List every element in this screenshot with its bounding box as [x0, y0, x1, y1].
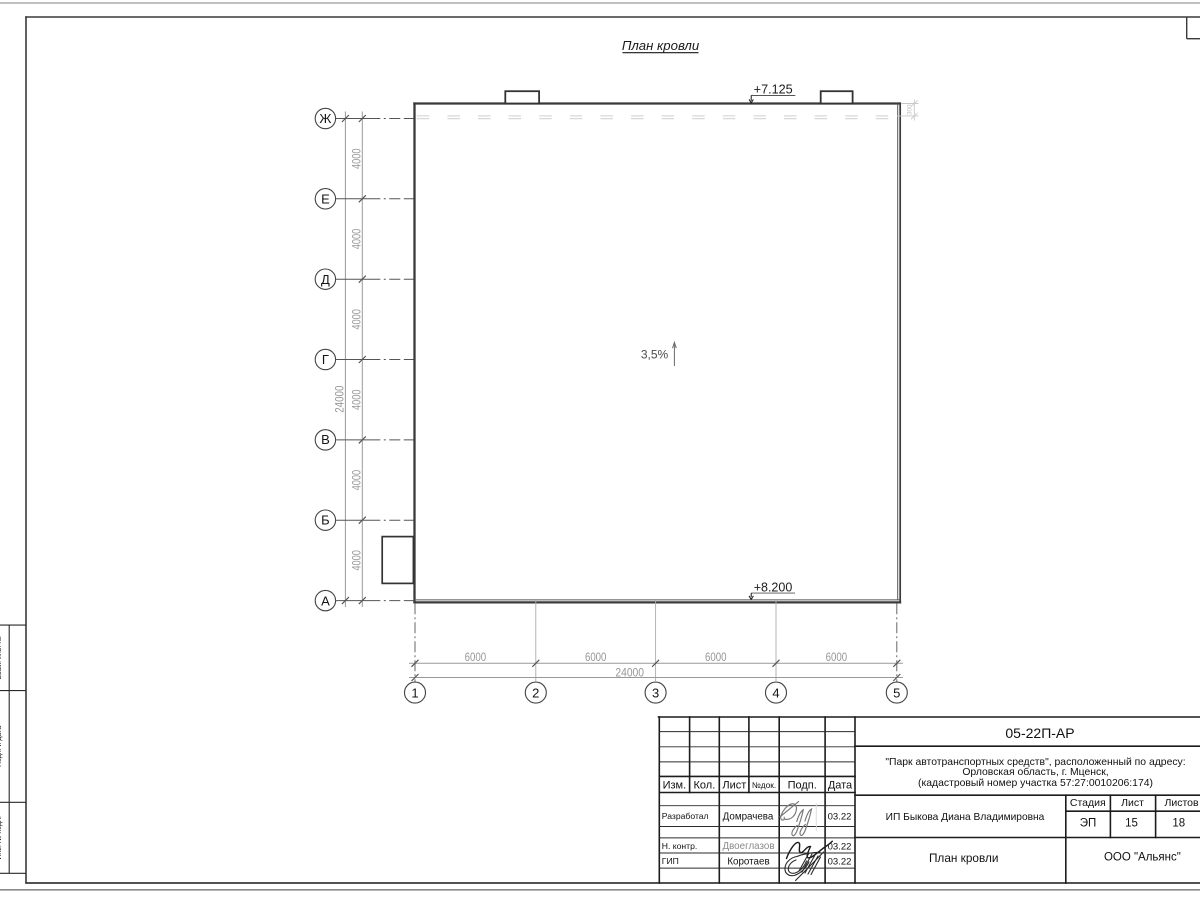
- svg-text:Подп.: Подп.: [788, 780, 817, 792]
- svg-text:ИП Быкова Диана Владимировна: ИП Быкова Диана Владимировна: [886, 812, 1045, 823]
- svg-text:Двоеглазов: Двоеглазов: [722, 841, 774, 852]
- svg-text:Б: Б: [321, 512, 330, 527]
- svg-text:300: 300: [906, 104, 913, 115]
- svg-text:6000: 6000: [585, 650, 607, 664]
- svg-text:4000: 4000: [350, 148, 364, 169]
- svg-text:+7.125: +7.125: [754, 83, 793, 97]
- svg-text:18: 18: [1172, 817, 1185, 829]
- svg-text:03.22: 03.22: [828, 812, 852, 823]
- svg-text:Листов: Листов: [1164, 797, 1199, 809]
- svg-text:5: 5: [893, 685, 900, 700]
- svg-text:План кровли: План кровли: [929, 851, 998, 865]
- svg-text:Коротаев: Коротаев: [727, 856, 769, 867]
- svg-text:Дата: Дата: [828, 780, 853, 792]
- svg-text:24000: 24000: [615, 665, 644, 679]
- svg-text:15: 15: [1125, 817, 1138, 829]
- svg-text:Орловская область, г. Мценск,: Орловская область, г. Мценск,: [962, 766, 1108, 778]
- svg-text:Лист: Лист: [1121, 797, 1144, 809]
- svg-text:4: 4: [772, 685, 779, 700]
- svg-text:4000: 4000: [350, 470, 364, 491]
- svg-text:6000: 6000: [465, 650, 487, 664]
- svg-text:4000: 4000: [350, 550, 364, 571]
- svg-text:Г: Г: [322, 352, 329, 367]
- svg-text:Лист: Лист: [722, 780, 746, 792]
- svg-text:Разработал: Разработал: [662, 811, 709, 821]
- svg-text:Домрачева: Домрачева: [723, 811, 774, 822]
- svg-text:Е: Е: [321, 192, 330, 207]
- svg-text:+8.200: +8.200: [754, 580, 793, 594]
- svg-text:Н. контр.: Н. контр.: [662, 841, 697, 851]
- svg-text:6000: 6000: [826, 650, 848, 664]
- svg-text:Подп. и дата: Подп. и дата: [0, 726, 3, 767]
- svg-text:4000: 4000: [350, 228, 364, 249]
- svg-text:ЭП: ЭП: [1080, 818, 1097, 830]
- svg-text:ГИП: ГИП: [662, 856, 679, 866]
- svg-text:№док.: №док.: [752, 780, 776, 790]
- svg-text:05-22П-АР: 05-22П-АР: [1005, 725, 1074, 741]
- svg-text:Д: Д: [321, 272, 330, 287]
- svg-text:(кадастровый номер участка 57:: (кадастровый номер участка 57:27:0010206…: [918, 778, 1153, 789]
- svg-text:24000: 24000: [332, 385, 346, 413]
- svg-text:Кол.: Кол.: [694, 780, 716, 792]
- svg-text:А: А: [321, 593, 330, 608]
- svg-text:3: 3: [652, 685, 659, 700]
- svg-text:Ж: Ж: [319, 111, 331, 126]
- svg-text:03.22: 03.22: [828, 842, 852, 853]
- svg-text:1: 1: [411, 685, 418, 700]
- svg-text:03.22: 03.22: [828, 857, 852, 868]
- svg-text:Изм.: Изм.: [663, 780, 687, 792]
- svg-text:6000: 6000: [705, 650, 727, 664]
- svg-text:ООО "Альянс": ООО "Альянс": [1104, 851, 1181, 863]
- svg-text:2: 2: [532, 685, 539, 700]
- svg-text:Инв. № подл.: Инв. № подл.: [0, 816, 3, 860]
- svg-text:План кровли: План кровли: [622, 38, 700, 53]
- svg-text:Стадия: Стадия: [1070, 797, 1106, 809]
- svg-text:3,5%: 3,5%: [641, 347, 669, 361]
- svg-text:В: В: [321, 432, 330, 447]
- svg-text:Взам. инв. №: Взам. инв. №: [0, 636, 3, 679]
- svg-text:4000: 4000: [350, 389, 364, 410]
- svg-text:4000: 4000: [350, 309, 364, 330]
